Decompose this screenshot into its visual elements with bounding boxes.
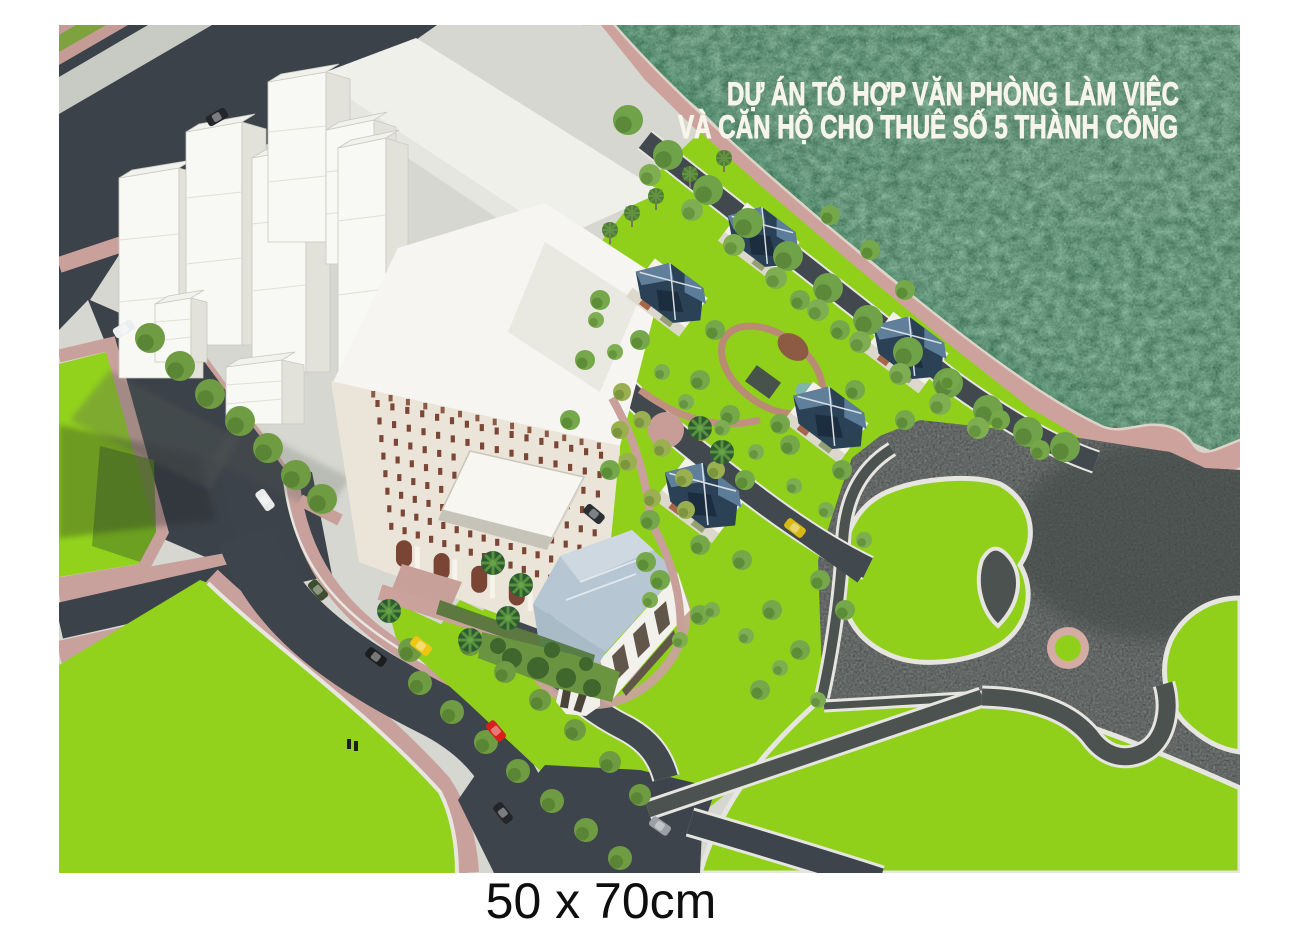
svg-text:DỰ ÁN TỔ HỢP VĂN PHÒNG LÀM VIỆ: DỰ ÁN TỔ HỢP VĂN PHÒNG LÀM VIỆC <box>727 76 1179 112</box>
svg-text:50 x 70cm: 50 x 70cm <box>486 873 717 929</box>
svg-text:VÀ CĂN HỘ CHO THUÊ SỐ 5 THÀNH: VÀ CĂN HỘ CHO THUÊ SỐ 5 THÀNH CÔNG <box>678 109 1178 145</box>
